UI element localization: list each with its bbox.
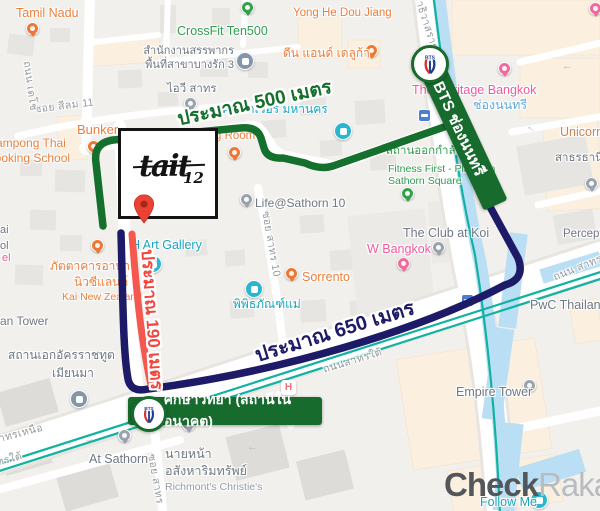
- bts-logo-marker-suksawitthaya[interactable]: BTS: [131, 396, 167, 432]
- station-banner-label: ศึกษาวิทยา (สถานีในอนาคต): [164, 389, 322, 433]
- distance-label-190m: ประมาณ 190 เมตร: [133, 237, 171, 402]
- venue-name: tait: [139, 149, 190, 184]
- distance-label-500m: ประมาณ 500 เมตร: [175, 72, 335, 134]
- bts-logo-marker-chong-nonsi[interactable]: BTS: [411, 45, 449, 83]
- watermark-bold: Check: [444, 466, 538, 503]
- bts-logo-icon: BTS: [138, 403, 160, 425]
- svg-text:BTS: BTS: [144, 406, 153, 411]
- watermark-light: Raka: [538, 466, 600, 503]
- checkraka-watermark: CheckRaka: [444, 466, 600, 504]
- venue-number: 12: [183, 169, 204, 187]
- distance-label-650m: ประมาณ 650 เมตร: [251, 292, 419, 371]
- bts-logo-icon: BTS: [418, 52, 442, 76]
- map-canvas[interactable]: ซอย สีลม 11 ถนน เดโช ถนนนราธิวาสราชนคริน…: [0, 0, 600, 511]
- destination-pin-icon[interactable]: [131, 193, 157, 227]
